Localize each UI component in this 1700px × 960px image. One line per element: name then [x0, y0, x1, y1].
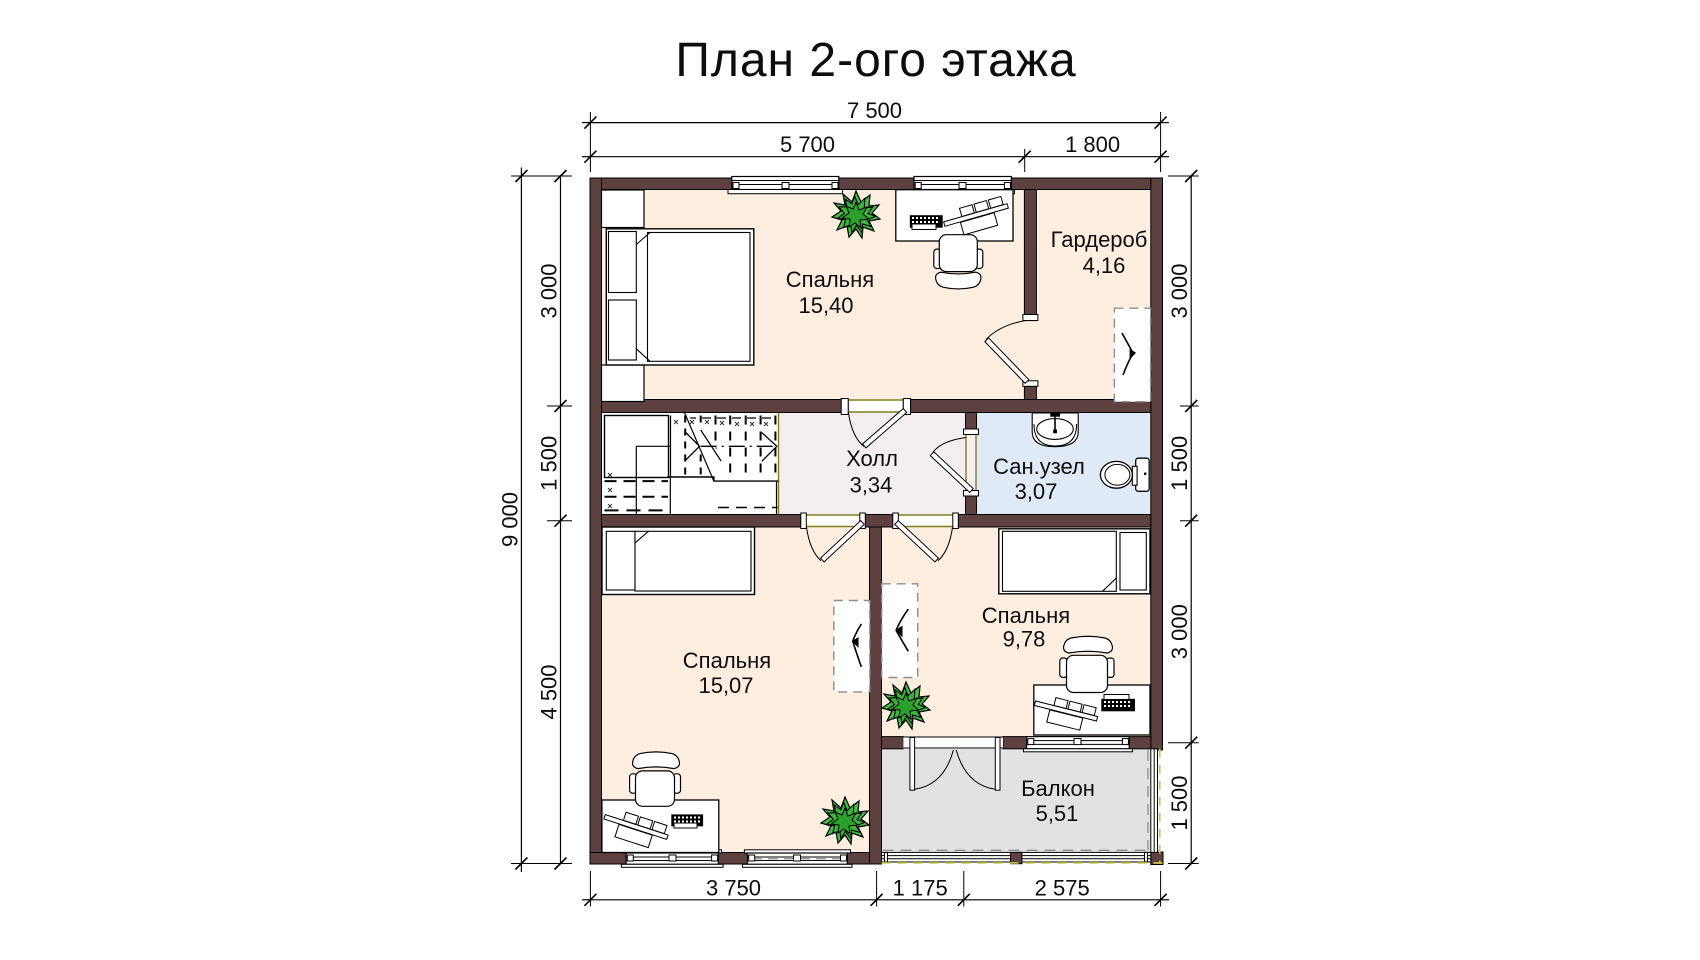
- svg-text:Балкон: Балкон: [1021, 776, 1095, 801]
- svg-text:9,78: 9,78: [1003, 627, 1046, 652]
- svg-text:Холл: Холл: [846, 446, 898, 471]
- svg-text:15,07: 15,07: [698, 673, 753, 698]
- svg-text:3,07: 3,07: [1015, 479, 1058, 504]
- svg-text:3 000: 3 000: [1167, 604, 1192, 659]
- svg-text:Гардероб: Гардероб: [1051, 227, 1148, 252]
- svg-text:3 000: 3 000: [1167, 263, 1192, 318]
- svg-text:5 700: 5 700: [780, 132, 835, 157]
- svg-text:Спальня: Спальня: [683, 648, 771, 673]
- svg-text:1 175: 1 175: [893, 876, 948, 901]
- svg-text:5,51: 5,51: [1036, 801, 1079, 826]
- svg-text:1 500: 1 500: [1167, 436, 1192, 491]
- svg-text:3 750: 3 750: [706, 876, 761, 901]
- svg-text:Спальня: Спальня: [982, 603, 1070, 628]
- svg-text:2 575: 2 575: [1035, 876, 1090, 901]
- svg-text:15,40: 15,40: [798, 293, 853, 318]
- svg-text:4,16: 4,16: [1083, 253, 1126, 278]
- svg-text:1 800: 1 800: [1065, 132, 1120, 157]
- svg-text:9 000: 9 000: [498, 492, 523, 547]
- svg-text:Сан.узел: Сан.узел: [993, 454, 1085, 479]
- svg-text:Спальня: Спальня: [786, 267, 874, 292]
- svg-text:4 500: 4 500: [537, 664, 562, 719]
- svg-text:3 000: 3 000: [537, 263, 562, 318]
- svg-text:1 500: 1 500: [1167, 775, 1192, 830]
- svg-text:1 500: 1 500: [537, 436, 562, 491]
- svg-text:3,34: 3,34: [850, 473, 893, 498]
- svg-text:7 500: 7 500: [847, 98, 902, 123]
- svg-text:План 2-ого этажа: План 2-ого этажа: [675, 34, 1076, 87]
